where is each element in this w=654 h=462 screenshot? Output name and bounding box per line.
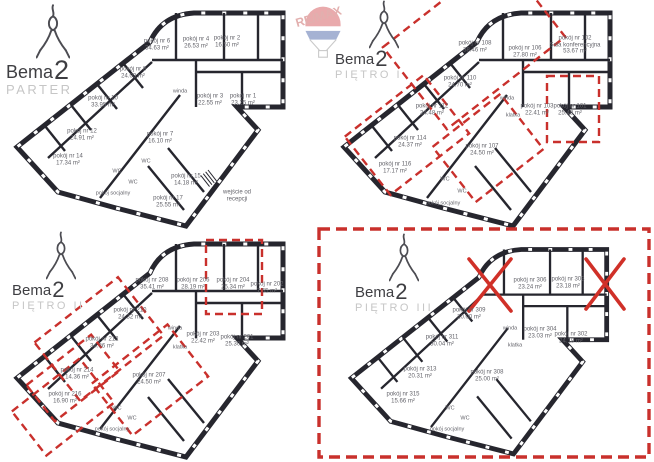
room-label: pokój nr 11234.48 m² xyxy=(416,104,449,117)
room-label: pokój nr 10627.80 m² xyxy=(508,46,541,59)
facility-label: WC xyxy=(141,159,150,165)
facility-label: WC xyxy=(445,406,454,412)
tower-icon xyxy=(46,231,76,281)
floor-logo: Bema2 PIĘTRO III xyxy=(355,233,485,314)
room-label: pokój nr 20724.50 m² xyxy=(132,373,165,386)
facility-label: pokój socjalny xyxy=(430,427,465,433)
tower-icon xyxy=(389,233,419,283)
brand-name: Bema2 xyxy=(12,281,142,298)
room-label: pokój nr 30323.18 m² xyxy=(551,277,584,290)
brand-name: Bema2 xyxy=(355,283,485,300)
facility-label: winda xyxy=(503,326,517,332)
room-label: pokój nr 20425.34 m² xyxy=(216,278,249,291)
floor-name: PARTER xyxy=(6,82,136,97)
room-label: pokój nr 123.25 m² xyxy=(230,94,256,107)
floor-logo: Bema2 PIĘTRO II xyxy=(12,231,142,312)
room-label: pokój nr 11617.17 m² xyxy=(379,162,412,175)
room-label: pokój nr 20125.30 m² xyxy=(220,335,253,348)
facility-label: WC xyxy=(112,406,121,412)
brand-name: Bema2 xyxy=(335,50,465,67)
room-label: pokój nr 20628.19 m² xyxy=(176,278,209,291)
facility-label: pokój socjalny xyxy=(95,427,130,433)
facility-label: WC xyxy=(128,180,137,186)
facility-label: WC xyxy=(112,169,121,175)
brand-name: Bema2 xyxy=(6,60,136,80)
floor-plans-page: RE/MAX Bema2 PARTER pokój nr 634.63 m² p… xyxy=(0,0,654,462)
room-label: pokój nr 10125.48 m² xyxy=(553,104,586,117)
room-label: pokój nr 11424.37 m² xyxy=(394,136,427,149)
room-label: pokój nr 426.53 m² xyxy=(183,37,209,50)
floor-plan-pietro-2: Bema2 PIĘTRO II pokój nr 20835.41 m² pok… xyxy=(0,231,327,462)
room-label: pokój nr 1725.55 m² xyxy=(153,196,183,209)
room-label: pokój nr 31130.04 m² xyxy=(426,335,459,348)
facility-label: winda xyxy=(168,326,182,332)
room-label: pokój nr 2027.55 m² xyxy=(250,282,283,295)
tower-icon xyxy=(36,4,70,60)
facility-label: klatka xyxy=(508,343,522,349)
room-label: pokój nr 31320.31 m² xyxy=(403,367,436,380)
tower-icon xyxy=(369,0,399,50)
room-label: pokój nr 322.55 m² xyxy=(197,94,223,107)
room-label: pokój nr 21414.36 m² xyxy=(60,368,93,381)
room-label: pokój nr 10724.50 m² xyxy=(465,144,498,157)
floor-name: PIĘTRO II xyxy=(12,300,142,312)
facility-label: WC xyxy=(440,177,449,183)
facility-label: WC xyxy=(460,416,469,422)
facility-label: winda xyxy=(500,96,514,102)
room-label: pokój nr 10322.41 m² xyxy=(520,104,553,117)
facility-label: pokój socjalny xyxy=(426,201,461,207)
floor-plan-pietro-3: Bema2 PIĘTRO III pokój nr 30623.24 m² po… xyxy=(327,231,654,462)
room-label: pokój nr 30825.00 m² xyxy=(470,370,503,383)
facility-label: pokój socjalny xyxy=(96,191,131,197)
room-label: pokój nr 716.10 m² xyxy=(147,132,173,145)
room-label: pokój nr 216.50 m² xyxy=(214,36,240,49)
floor-name: PIĘTRO III xyxy=(355,302,485,314)
room-label: pokój nr 634.63 m² xyxy=(144,39,170,52)
facility-label: WC xyxy=(127,416,136,422)
room-label: pokój nr 30623.24 m² xyxy=(513,278,546,291)
room-label: pokój nr 1514.18 m² xyxy=(171,174,201,187)
floor-logo: Bema2 PARTER xyxy=(6,4,136,97)
floor-name: PIĘTRO I xyxy=(335,69,465,81)
room-label: pokój nr 102Sala konferencyjna53.67 m² xyxy=(549,35,600,55)
room-label: pokój nr 1417.34 m² xyxy=(53,154,83,167)
room-label: pokój nr 30423.03 m² xyxy=(523,327,556,340)
floor-plan-parter: Bema2 PARTER pokój nr 634.63 m² pokój nr… xyxy=(0,0,327,231)
floor-logo: Bema2 PIĘTRO I xyxy=(335,0,465,81)
room-label: pokój nr 1033.95 m² xyxy=(88,96,118,109)
room-label: pokój nr 31515.66 m² xyxy=(386,392,419,405)
facility-label: klatka xyxy=(173,345,187,351)
facility-label: winda xyxy=(173,89,187,95)
room-label: pokój nr 30224.18 m² xyxy=(554,332,587,345)
room-label: pokój nr 1224.91 m² xyxy=(67,129,97,142)
room-label: pokój nr 21234.36 m² xyxy=(85,337,118,350)
room-label: pokój nr 21616.90 m² xyxy=(48,392,81,405)
facility-label: klatka xyxy=(506,113,520,119)
room-label: pokój nr 20322.42 m² xyxy=(186,332,219,345)
facility-label: WC xyxy=(457,189,466,195)
entrance-label: wejście od recepcji xyxy=(217,190,257,203)
floor-plan-pietro-1: Bema2 PIĘTRO I pokój nr 10838.46 m² pokó… xyxy=(327,0,654,231)
